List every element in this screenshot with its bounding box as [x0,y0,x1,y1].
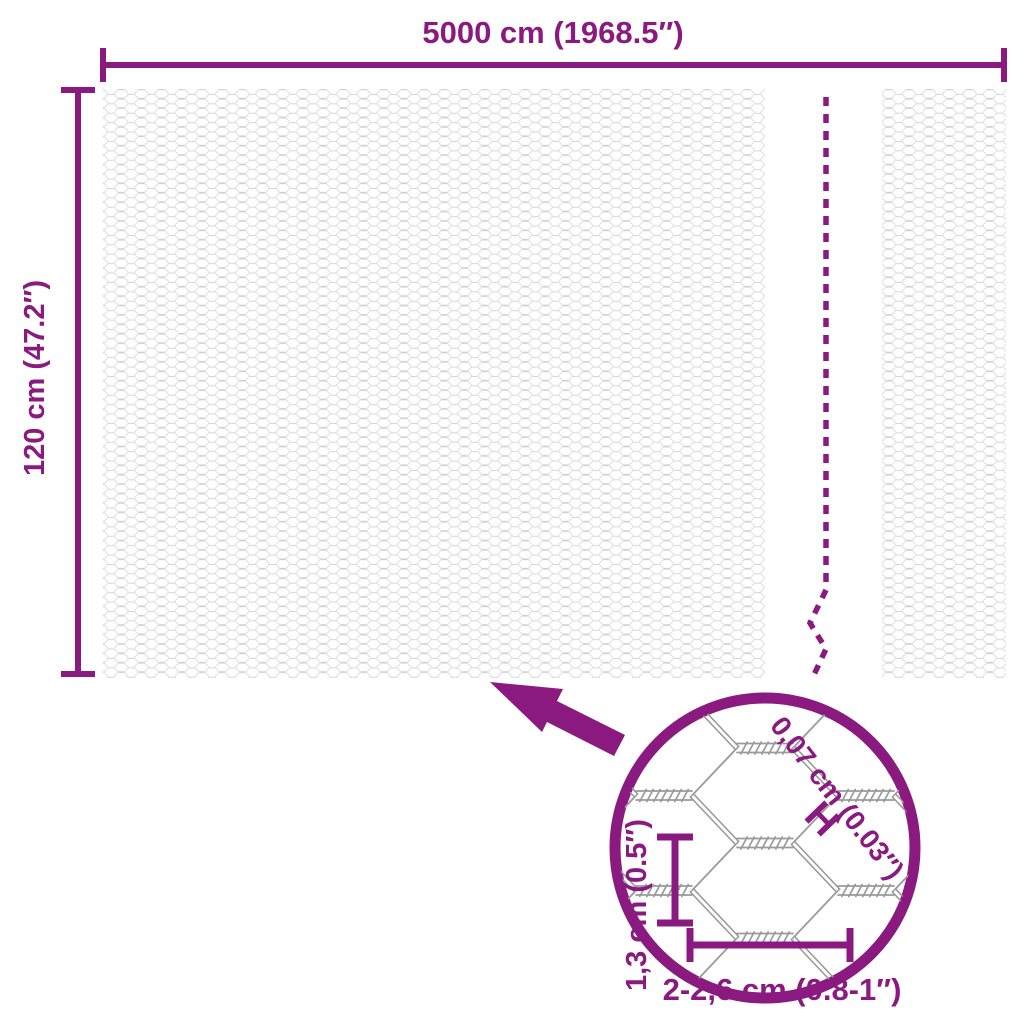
zoom-arrow-icon [490,682,625,756]
width-dimension-line [103,48,1004,82]
height-dimension-line [61,90,95,674]
diagram-canvas: 5000 cm (1968.5″) 120 cm (47.2″) 1,3 cm … [0,0,1024,1024]
mesh-panel-left [103,89,765,678]
product-dimension-diagram: 5000 cm (1968.5″) 120 cm (47.2″) 1,3 cm … [0,0,1024,1024]
break-dashed-line [810,97,826,679]
mesh-width-label: 2-2,6 cm (0.8-1″) [663,972,902,1007]
mesh-panel-right [882,89,1006,678]
mesh-height-label: 1,3 cm (0.5″) [621,819,653,991]
width-dimension-label: 5000 cm (1968.5″) [422,15,683,50]
height-dimension-label: 120 cm (47.2″) [19,280,51,476]
